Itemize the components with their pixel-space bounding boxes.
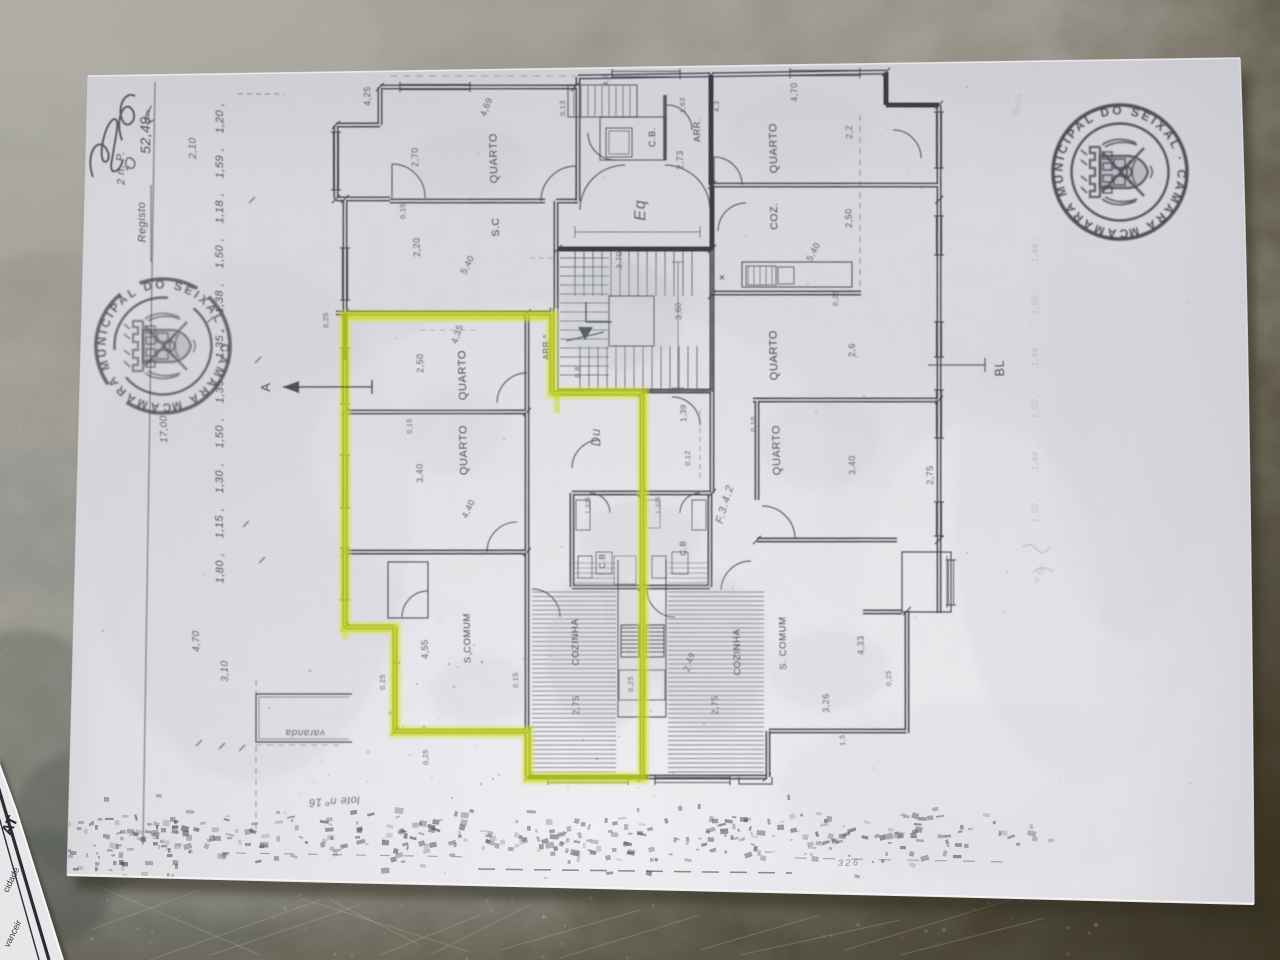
svg-text:BL: BL — [993, 360, 1007, 377]
svg-text:17,00: 17,00 — [159, 415, 171, 443]
svg-text:0,15: 0,15 — [400, 203, 407, 219]
svg-text:0,15: 0,15 — [407, 418, 414, 434]
svg-text:4,70: 4,70 — [191, 630, 202, 652]
svg-text:COZINHA: COZINHA — [570, 618, 582, 665]
svg-text:3,70: 3,70 — [615, 251, 624, 269]
svg-text:2,2: 2,2 — [844, 125, 854, 139]
svg-text:0,25: 0,25 — [628, 676, 635, 692]
svg-text:QUARTO: QUARTO — [767, 123, 780, 173]
svg-text:S.COMUM: S.COMUM — [462, 613, 474, 663]
svg-text:4,3: 4,3 — [714, 100, 721, 111]
svg-text:0,15: 0,15 — [751, 416, 758, 432]
svg-text:QUARTO: QUARTO — [456, 350, 469, 400]
svg-text:0,25: 0,25 — [886, 670, 893, 686]
svg-text:S. COMUM: S. COMUM — [777, 616, 789, 670]
svg-text:1,20 ,: 1,20 , — [214, 103, 227, 134]
svg-text:3,60: 3,60 — [674, 302, 683, 320]
svg-text:Eq: Eq — [632, 199, 649, 221]
svg-text:2,73: 2,73 — [675, 150, 685, 170]
svg-text:0,25: 0,25 — [423, 749, 430, 765]
svg-text:0,12: 0,12 — [685, 450, 692, 466]
svg-text:ARR.: ARR. — [692, 118, 702, 142]
svg-text:0,13: 0,13 — [560, 100, 567, 116]
svg-text:QUARTO: QUARTO — [488, 133, 501, 183]
svg-text:0,25: 0,25 — [323, 312, 330, 328]
svg-text:2,75: 2,75 — [571, 695, 581, 715]
svg-text:0,25: 0,25 — [380, 674, 387, 690]
svg-text:2,50: 2,50 — [844, 208, 854, 228]
svg-text:✕: ✕ — [718, 273, 727, 280]
svg-text:2,75: 2,75 — [710, 695, 720, 715]
svg-text:3,40: 3,40 — [847, 455, 857, 475]
svg-text:4,55: 4,55 — [420, 639, 430, 659]
svg-text:1,44 ,: 1,44 , — [1030, 237, 1041, 263]
svg-text:QUARTO: QUARTO — [768, 330, 781, 380]
svg-text:C.B: C.B — [679, 540, 688, 555]
svg-text:2,75: 2,75 — [925, 465, 935, 485]
svg-text:2,50: 2,50 — [415, 353, 425, 373]
svg-text:2,20: 2,20 — [412, 237, 422, 257]
svg-text:1,15 ,: 1,15 , — [214, 508, 227, 539]
svg-text:1,50 ,: 1,50 , — [1030, 497, 1041, 523]
svg-text:1,39: 1,39 — [679, 404, 688, 422]
svg-text:2,10: 2,10 — [188, 137, 199, 160]
svg-text:2 n. P.: 2 n. P. — [115, 151, 128, 186]
svg-text:1,44 ,: 1,44 , — [1030, 341, 1041, 367]
svg-text:2,70: 2,70 — [410, 147, 420, 167]
svg-text:S.C: S.C — [490, 217, 502, 237]
svg-text:1,325: 1,325 — [586, 496, 592, 514]
svg-text:3,10: 3,10 — [220, 660, 231, 682]
svg-text:4,2: 4,2 — [603, 74, 610, 85]
svg-text:C.B: C.B — [598, 553, 607, 568]
svg-text:C.B.: C.B. — [647, 127, 657, 147]
svg-text:1,44 ,: 1,44 , — [1030, 445, 1041, 471]
svg-text:QUARTO: QUARTO — [457, 425, 470, 475]
svg-text:COZINHA: COZINHA — [732, 628, 744, 675]
svg-text:1,59 ,: 1,59 , — [214, 148, 227, 179]
svg-text:1,50 ,: 1,50 , — [214, 238, 227, 269]
svg-text:1,50 ,: 1,50 , — [1030, 289, 1041, 315]
svg-text:1,50 ,: 1,50 , — [214, 418, 227, 449]
svg-text:0,15: 0,15 — [513, 672, 520, 688]
svg-text:1,50 ,: 1,50 , — [1030, 393, 1041, 419]
svg-text:Registo: Registo — [136, 202, 149, 243]
svg-text:0,8: 0,8 — [575, 366, 582, 377]
svg-text:1,18 ,: 1,18 , — [214, 193, 227, 224]
svg-text:varanda: varanda — [285, 727, 325, 739]
svg-text:2,6: 2,6 — [847, 343, 857, 357]
svg-text:1,63: 1,63 — [680, 97, 687, 113]
svg-text:Du: Du — [588, 428, 603, 447]
svg-text:4,70: 4,70 — [789, 82, 799, 102]
svg-text:3,40: 3,40 — [415, 463, 425, 483]
svg-text:3,26: 3,26 — [821, 693, 831, 713]
svg-text:0,25: 0,25 — [833, 290, 840, 306]
svg-text:QUARTO: QUARTO — [771, 425, 784, 475]
svg-text:1,30 ,: 1,30 , — [214, 463, 227, 494]
svg-text:3 2 6: 3 2 6 — [838, 857, 858, 868]
svg-text:1,325: 1,325 — [656, 496, 662, 514]
svg-text:COZ.: COZ. — [768, 202, 781, 230]
svg-text:1,80 ,: 1,80 , — [214, 553, 227, 584]
svg-text:4,25: 4,25 — [362, 86, 372, 106]
svg-text:ARR.º: ARR.º — [542, 334, 552, 359]
svg-text:4,33: 4,33 — [856, 635, 866, 655]
svg-text:1,5: 1,5 — [840, 734, 847, 745]
svg-text:A: A — [258, 382, 273, 392]
